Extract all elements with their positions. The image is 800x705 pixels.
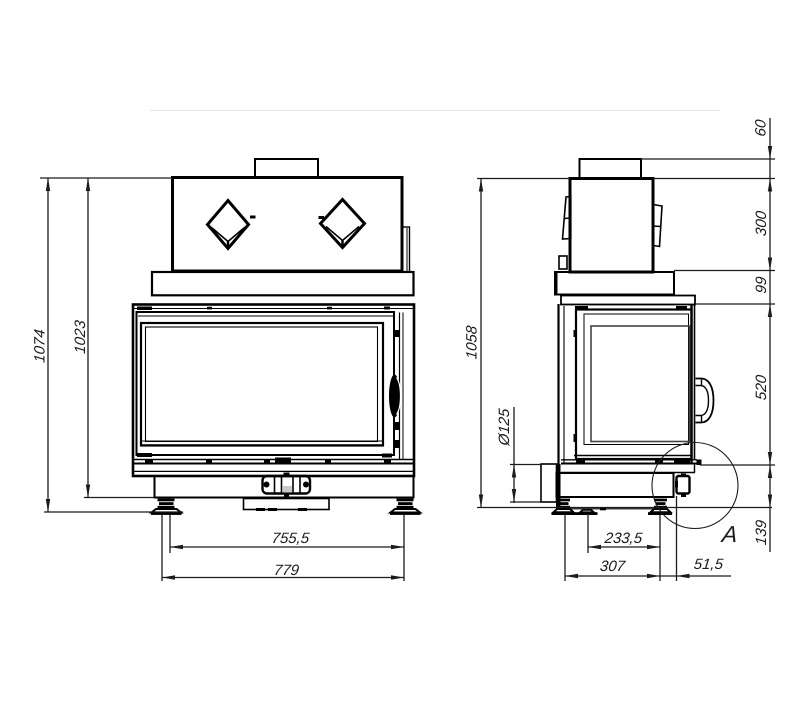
svg-text:1058: 1058 xyxy=(464,324,481,360)
svg-text:233,5: 233,5 xyxy=(603,530,644,547)
svg-text:60: 60 xyxy=(753,118,770,137)
svg-text:300: 300 xyxy=(753,210,770,237)
svg-text:307: 307 xyxy=(599,558,626,575)
svg-text:99: 99 xyxy=(753,275,770,294)
svg-text:1074: 1074 xyxy=(32,328,49,363)
svg-text:755,5: 755,5 xyxy=(271,530,311,547)
svg-text:Ø125: Ø125 xyxy=(496,407,513,447)
svg-text:139: 139 xyxy=(753,519,770,546)
svg-text:51,5: 51,5 xyxy=(693,556,725,573)
svg-text:1023: 1023 xyxy=(72,319,89,355)
svg-text:779: 779 xyxy=(273,562,300,579)
svg-text:520: 520 xyxy=(753,374,770,401)
